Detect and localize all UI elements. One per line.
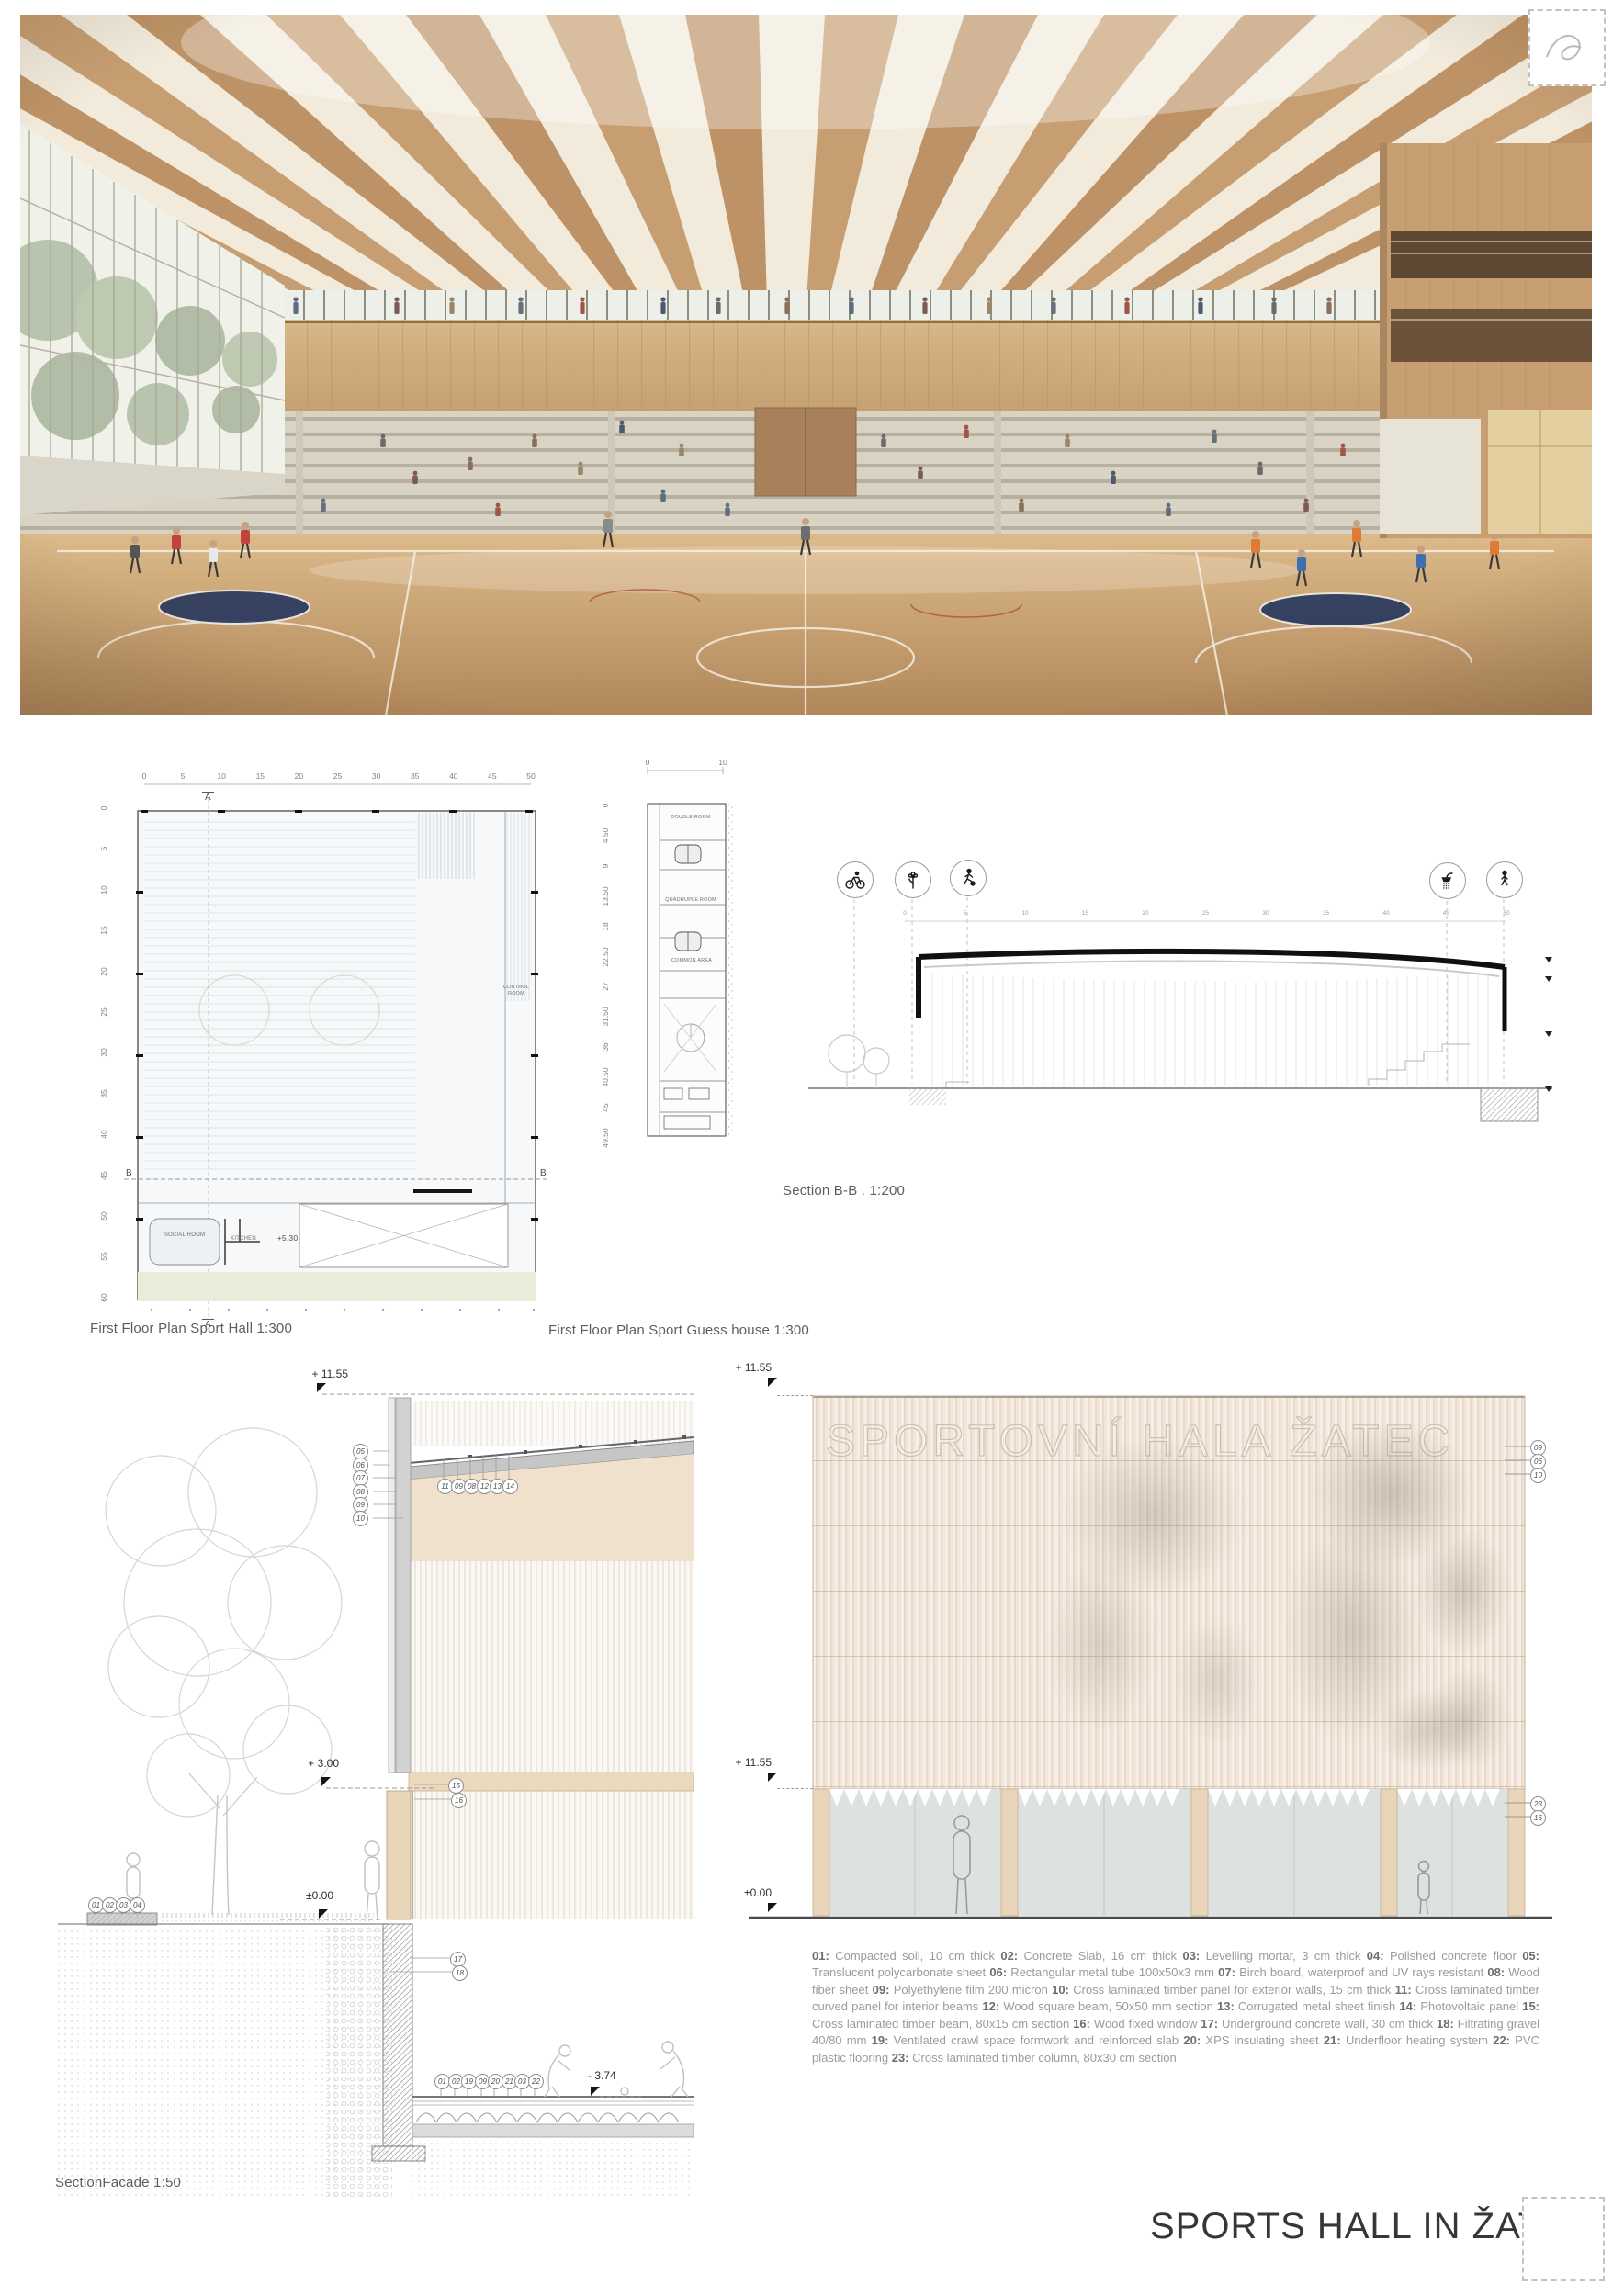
label-plan-guest: First Floor Plan Sport Guess house 1:300 <box>548 1322 809 1338</box>
room-label-quadruple: QUADRUPLE ROOM <box>664 897 717 904</box>
interior-render <box>20 15 1592 715</box>
ruler-number: 50 <box>526 771 535 781</box>
elevation: SPORTOVNÍ HALA ŽATEC <box>735 1359 1566 1938</box>
ruler-number: 20 <box>99 967 108 975</box>
section-bb: 05101520253035404550 <box>781 822 1557 1194</box>
tribune-steps <box>1369 1044 1470 1086</box>
callout-number: 16 <box>1530 1810 1546 1826</box>
ruler-number: 0 <box>646 758 650 767</box>
level-marker <box>591 2087 600 2096</box>
legend-item-number: 09: <box>873 1983 890 1997</box>
legend-item-number: 14: <box>1399 1999 1416 2013</box>
callout-number: 18 <box>452 1965 468 1981</box>
sketch-stamp-icon <box>1530 11 1604 84</box>
ground-floor-glazing <box>829 1789 1508 1916</box>
ruler-number: 30 <box>1262 910 1269 917</box>
callout-number: 14 <box>502 1479 518 1494</box>
label-plan-hall: First Floor Plan Sport Hall 1:300 <box>90 1321 292 1336</box>
ruler-number: 31.50 <box>601 1007 610 1027</box>
bicycle-icon <box>837 861 874 898</box>
presentation-board: 05101520253035404550 0510152025303540455… <box>0 0 1624 2296</box>
ruler-number: 55 <box>99 1253 108 1261</box>
room-label-control: CONTROL ROOM <box>496 985 536 997</box>
room-label-common: COMMON AREA <box>666 958 717 964</box>
ruler-number: 5 <box>99 847 108 851</box>
ruler-number: 0 <box>142 771 147 781</box>
ruler-number: 60 <box>99 1293 108 1301</box>
ruler-number: 9 <box>601 863 610 868</box>
ruler-number: 18 <box>601 922 610 930</box>
level-dash <box>777 1788 813 1789</box>
basement-box <box>1481 1088 1538 1121</box>
level-marker <box>768 1378 777 1387</box>
ruler-number: 27 <box>601 983 610 991</box>
ruler-number: 35 <box>411 771 419 781</box>
plan-guess-house: 010 04.50913.501822.502731.503640.504549… <box>565 758 753 1350</box>
legend-item-number: 02: <box>1000 1949 1018 1963</box>
level-marker <box>321 1777 331 1786</box>
ruler-number: 15 <box>1082 910 1088 917</box>
ruler-number: 0 <box>601 804 610 808</box>
tree-outline-large <box>106 1428 342 1915</box>
legend-item-number: 05: <box>1522 1949 1539 1963</box>
legend-item-number: 17: <box>1201 2017 1218 2031</box>
room-label-kitchen: KITCHEN <box>225 1236 262 1244</box>
ruler-number: 35 <box>99 1089 108 1097</box>
ruler-number: 49.50 <box>601 1128 610 1147</box>
legend-item-number: 18: <box>1437 2017 1454 2031</box>
crawl-space-formwork <box>416 2113 679 2122</box>
ruler-number: 10 <box>99 885 108 894</box>
tree-outline <box>863 1048 889 1074</box>
legend-item-number: 06: <box>989 1965 1007 1979</box>
ruler-number: 15 <box>256 771 265 781</box>
callout-number: 15 <box>448 1778 464 1794</box>
callout-number: 04 <box>130 1897 145 1913</box>
legend-item-number: 01: <box>812 1949 829 1963</box>
legend-item-number: 04: <box>1367 1949 1384 1963</box>
ruler-number: 10 <box>1021 910 1028 917</box>
polycarbonate-sheet <box>389 1398 395 1773</box>
underground-concrete-wall <box>383 1924 412 2146</box>
ruler-number: 22.50 <box>601 947 610 966</box>
level-elevation-mid: + 11.55 <box>729 1756 772 1769</box>
level-marker <box>768 1773 777 1782</box>
legend-item-number: 19: <box>872 2033 889 2047</box>
room-label-social: SOCIAL ROOM <box>161 1232 209 1240</box>
ruler-number: 50 <box>1503 910 1509 917</box>
callout-leaders <box>1505 1446 1532 1817</box>
facade-watermark-text: SPORTOVNÍ HALA ŽATEC <box>826 1416 1515 1467</box>
level-dash <box>777 1395 813 1396</box>
tree-outline <box>829 1035 865 1072</box>
legend-item-number: 12: <box>982 1999 999 2013</box>
ruler-number: 25 <box>1202 910 1209 917</box>
ruler-number: 45 <box>99 1171 108 1179</box>
level-elevation-ground: ±0.00 <box>729 1886 772 1899</box>
level-facade-mid: + 3.00 <box>282 1757 339 1770</box>
ruler-number: 50 <box>99 1211 108 1220</box>
pedestrian-icon <box>1486 861 1523 898</box>
level-facade-floor: - 3.74 <box>588 2069 616 2082</box>
plan-sport-hall-drawing <box>87 771 551 1341</box>
ruler-number: 40.50 <box>601 1067 610 1086</box>
callout-number: 10 <box>353 1511 368 1526</box>
ruler-number: 10 <box>217 771 225 781</box>
level-facade-ground: ±0.00 <box>276 1889 333 1902</box>
level-facade-top: + 11.55 <box>291 1367 348 1380</box>
interior-wall-stripes <box>411 1561 694 1919</box>
flower-icon <box>895 861 931 898</box>
ruler-number: 25 <box>333 771 342 781</box>
interior-render-scene <box>20 15 1592 715</box>
label-section-facade: SectionFacade 1:50 <box>55 2175 181 2190</box>
callout-number: 10 <box>1530 1468 1546 1483</box>
ruler-number: 45 <box>601 1103 610 1111</box>
ruler-number: 45 <box>1443 910 1449 917</box>
timber-column <box>387 1791 411 1919</box>
ruler-number: 0 <box>903 910 907 917</box>
legend-item-number: 20: <box>1183 2033 1201 2047</box>
section-marker-b-left: B <box>126 1168 132 1178</box>
callout-number: 16 <box>451 1793 467 1808</box>
icon-leader-lines <box>854 897 1504 1084</box>
level-marks <box>1545 957 1552 1092</box>
section-marker-b-right: B <box>540 1168 547 1178</box>
ruler-number: 40 <box>1382 910 1389 917</box>
label-section-bb: Section B-B . 1:200 <box>783 1183 905 1199</box>
ruler-number: 20 <box>1142 910 1148 917</box>
person-outline-outside <box>127 1841 379 1919</box>
ruler-number: 40 <box>449 771 457 781</box>
legend-item-number: 07: <box>1218 1965 1235 1979</box>
ruler-number: 36 <box>601 1042 610 1051</box>
grass-line <box>159 1913 374 1921</box>
level-elevation-top: + 11.55 <box>729 1361 772 1374</box>
legend-item-number: 11: <box>1395 1983 1412 1997</box>
plan-landscape-strip <box>138 1272 536 1301</box>
ruler-number: 25 <box>99 1007 108 1016</box>
axis-a-top: A <box>202 792 214 803</box>
level-marker <box>319 1909 328 1919</box>
legend-item-number: 22: <box>1493 2033 1510 2047</box>
stamp-box-bottom <box>1522 2197 1605 2281</box>
soccer-player-icon <box>950 860 987 896</box>
legend-item-number: 16: <box>1073 2017 1090 2031</box>
plan-sport-hall: 05101520253035404550 0510152025303540455… <box>87 771 551 1341</box>
level-marker <box>317 1383 326 1392</box>
ruler-number: 30 <box>372 771 380 781</box>
shower-icon <box>1429 862 1466 899</box>
level-marker <box>768 1903 777 1912</box>
ruler-number: 13.50 <box>601 886 610 906</box>
person-outline-playing <box>545 2042 688 2097</box>
level-plan-hall: +5.30 <box>269 1233 306 1244</box>
clt-wall <box>396 1398 411 1773</box>
ruler-number: 30 <box>99 1049 108 1057</box>
legend-item-number: 10: <box>1052 1983 1069 1997</box>
material-legend: 01: Compacted soil, 10 cm thick 02: Conc… <box>812 1948 1539 2066</box>
vignette <box>20 15 1592 715</box>
callout-number: 22 <box>528 2074 544 2089</box>
reinforced-slab <box>412 2124 694 2137</box>
ruler-number: 15 <box>99 926 108 934</box>
legend-item-number: 21: <box>1324 2033 1341 2047</box>
legend-item-number: 15: <box>1522 1999 1539 2013</box>
legend-item-number: 03: <box>1182 1949 1200 1963</box>
ruler-number: 45 <box>488 771 496 781</box>
plan-guess-house-drawing <box>565 758 753 1350</box>
ruler-number: 4.50 <box>601 828 610 844</box>
ruler-number: 5 <box>964 910 967 917</box>
legend-item-number: 23: <box>892 2051 909 2065</box>
legend-item-number: 08: <box>1487 1965 1505 1979</box>
section-facade-detail: + 11.55 + 3.00 ±0.00 - 3.74 050607080910… <box>51 1364 698 2204</box>
room-label-double: DOUBLE ROOM <box>668 815 714 821</box>
ruler-number: 5 <box>181 771 186 781</box>
ruler-number: 0 <box>99 806 108 811</box>
ruler-number: 40 <box>99 1130 108 1138</box>
legend-item-number: 13: <box>1217 1999 1235 2013</box>
ruler-number: 10 <box>718 758 727 767</box>
ruler-number: 35 <box>1323 910 1329 917</box>
stamp-box-top <box>1528 9 1606 86</box>
ruler-number: 20 <box>295 771 303 781</box>
